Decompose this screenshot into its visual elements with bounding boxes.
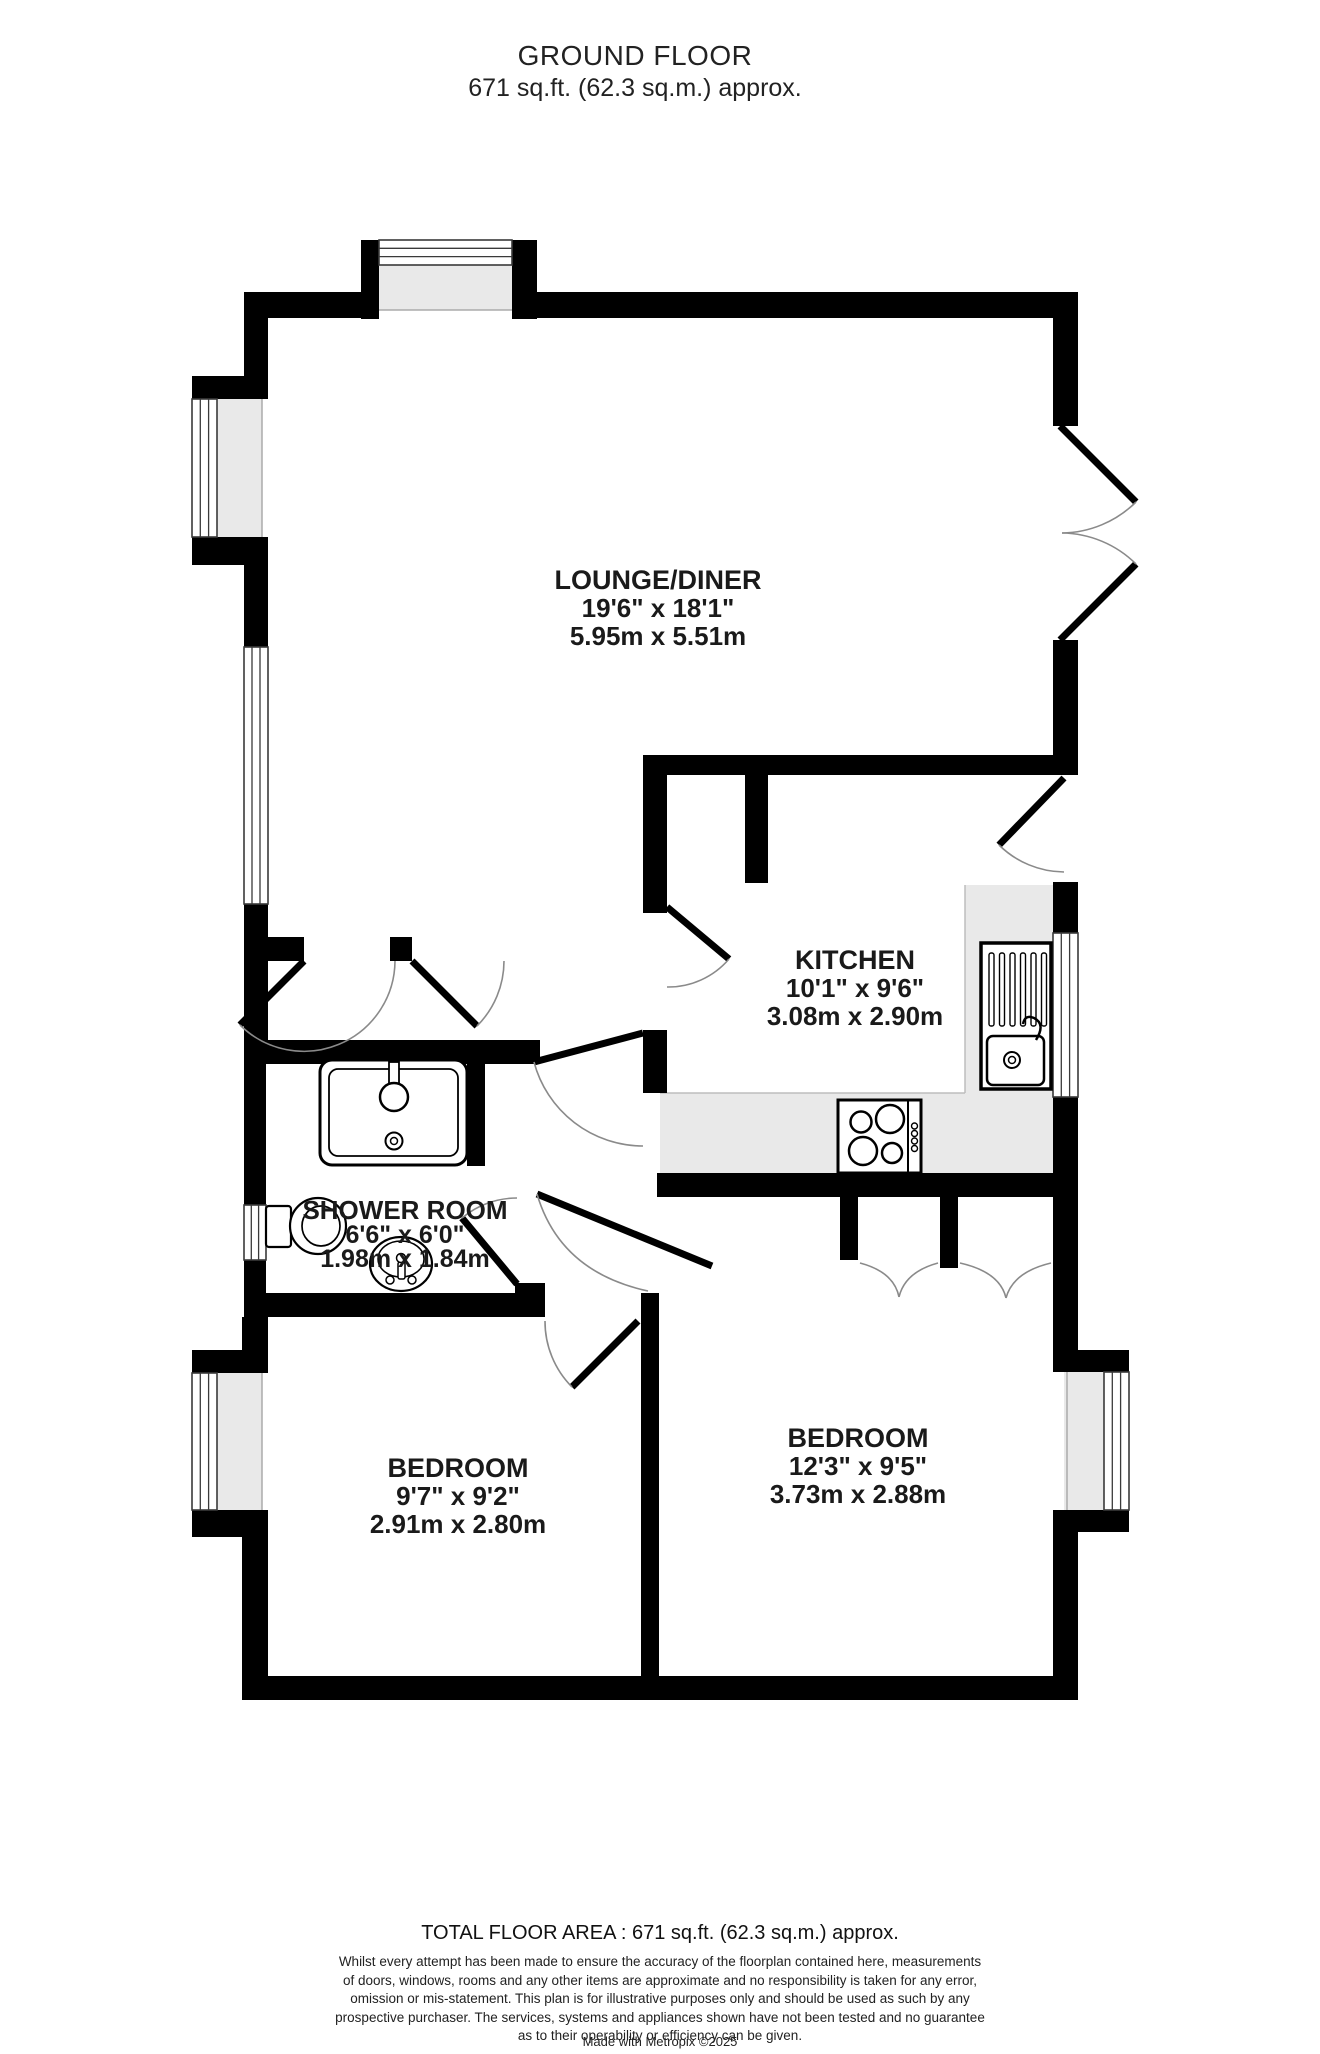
- disclaimer-line: omission or mis-statement. This plan is …: [0, 1990, 1320, 2009]
- bedroom-left-door: [545, 1321, 638, 1387]
- shower-room-window: [244, 1205, 266, 1260]
- lobby-door-right: [412, 961, 504, 1026]
- disclaimer-line: Whilst every attempt has been made to en…: [0, 1953, 1320, 1972]
- hob: [838, 1100, 921, 1173]
- bedroom-left-name: BEDROOM: [388, 1453, 529, 1483]
- lounge-top-bay-window: [379, 240, 512, 265]
- kitchen-metric: 3.08m x 2.90m: [767, 1001, 943, 1031]
- shower-head-icon: [380, 1083, 408, 1111]
- room-label-bedroom-right: BEDROOM 12'3" x 9'5" 3.73m x 2.88m: [770, 1423, 946, 1509]
- kitchen-external-door: [999, 778, 1064, 872]
- floorplan-page: GROUND FLOOR 671 sq.ft. (62.3 sq.m.) app…: [0, 0, 1320, 2054]
- lounge-side-window: [244, 647, 268, 904]
- floor-plan-canvas: LOUNGE/DINER 19'6" x 18'1" 5.95m x 5.51m…: [0, 0, 1320, 2054]
- lounge-left-bay-window: [192, 399, 217, 537]
- room-label-lounge: LOUNGE/DINER 19'6" x 18'1" 5.95m x 5.51m: [554, 565, 761, 651]
- total-floor-area: TOTAL FLOOR AREA : 671 sq.ft. (62.3 sq.m…: [0, 1922, 1320, 1945]
- room-label-kitchen: KITCHEN 10'1" x 9'6" 3.08m x 2.90m: [767, 945, 943, 1031]
- corridor-door: [667, 907, 729, 987]
- disclaimer-line: of doors, windows, rooms and any other i…: [0, 1972, 1320, 1991]
- bedroom-left-imperial: 9'7" x 9'2": [396, 1481, 520, 1511]
- disclaimer-text: Whilst every attempt has been made to en…: [0, 1953, 1320, 2046]
- lounge-metric: 5.95m x 5.51m: [570, 621, 746, 651]
- bedroom-right-metric: 3.73m x 2.88m: [770, 1479, 946, 1509]
- closet-bifold-doors: [860, 1263, 1051, 1298]
- bedroom-left-metric: 2.91m x 2.80m: [370, 1509, 546, 1539]
- bedroom-right-name: BEDROOM: [788, 1423, 929, 1453]
- bedroom-right-bay-window: [1104, 1372, 1129, 1510]
- bedroom-right-imperial: 12'3" x 9'5": [789, 1451, 927, 1481]
- kitchen-imperial: 10'1" x 9'6": [786, 973, 924, 1003]
- bedroom-left-bay-window: [192, 1373, 217, 1510]
- disclaimer-line: prospective purchaser. The services, sys…: [0, 2009, 1320, 2028]
- shower-metric: 1.98m x 1.84m: [320, 1245, 490, 1273]
- kitchen-name: KITCHEN: [795, 945, 915, 975]
- kitchen-window: [1053, 933, 1078, 1097]
- room-label-bedroom-left: BEDROOM 9'7" x 9'2" 2.91m x 2.80m: [370, 1453, 546, 1539]
- metropix-credit: Made with Metropix ©2025: [0, 2034, 1320, 2049]
- french-doors: [1060, 426, 1136, 640]
- shower-tray: [320, 1060, 467, 1165]
- hallway-door: [534, 1033, 643, 1146]
- kitchen-sink-unit: [981, 943, 1051, 1089]
- lounge-name: LOUNGE/DINER: [554, 565, 761, 595]
- bedroom-right-door: [537, 1194, 712, 1291]
- lounge-imperial: 19'6" x 18'1": [582, 593, 735, 623]
